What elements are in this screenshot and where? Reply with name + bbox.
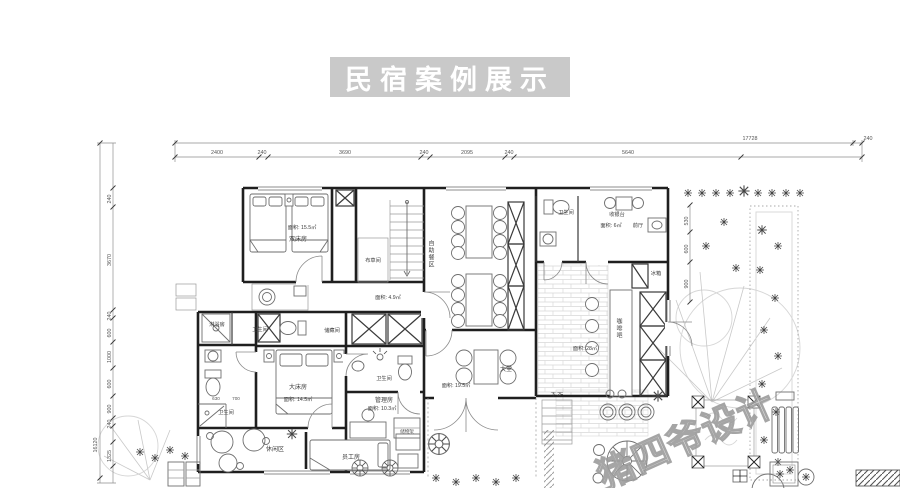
label-linen: 布草间 [365,256,381,264]
svg-text:2400: 2400 [211,150,223,156]
label-bar: 咖啡吧 [615,317,622,339]
label-lobby-area: 面积: 19.5㎡ [442,381,471,389]
label-wc-small: 卫生间 [376,374,392,382]
svg-text:3670: 3670 [107,254,113,266]
page-title: 民宿案例展示 [345,58,555,97]
label-hall-area: 面积: 6㎡ [600,221,622,229]
svg-text:5640: 5640 [622,150,634,156]
label-wc-strip: 卫生间 [252,325,268,333]
dim-top-right: 240 [864,136,873,142]
twin-beds [250,194,328,252]
label-office-shelf: 储物架 [400,428,414,435]
label-wc-top: 卫生间 [558,208,574,216]
label-staff: 员工房 [342,453,360,461]
svg-text:3690: 3690 [339,150,351,156]
svg-text:1000: 1000 [107,351,113,363]
label-twin-area: 面积: 15.5㎡ [288,223,317,231]
dim-left-overall: 16120 [93,438,99,453]
garden-left [136,284,200,486]
label-fridge: 冰箱 [651,269,661,277]
master-bath-fixtures [198,350,226,428]
svg-text:530: 530 [684,217,690,226]
svg-text:600: 600 [107,329,113,338]
label-leisure: 休闲区 [266,445,284,453]
label-storage: 储藏间 [324,326,340,334]
top-bathroom-fixtures [540,200,569,246]
svg-text:240: 240 [107,312,113,321]
svg-text:2095: 2095 [461,150,473,156]
label-twin-name: 双床房 [289,235,307,243]
label-cashier: 收银台 [609,210,625,218]
label-master-area: 面积: 14.5㎡ [284,395,313,403]
svg-text:240: 240 [505,150,514,156]
label-master-name: 大床房 [289,383,307,391]
svg-text:600: 600 [684,245,690,254]
label-shower: 淋浴房 [209,320,225,328]
label-corridor-area: 面积: 4.9㎡ [375,293,401,301]
svg-text:1325: 1325 [107,450,113,462]
svg-text:240: 240 [420,150,429,156]
svg-text:240: 240 [258,150,267,156]
staircase [358,200,424,282]
svg-text:240: 240 [107,195,113,204]
label-stair-down: 下 2F [551,391,564,398]
label-bar-area: 面积: 28㎡ [573,344,598,352]
label-wc-master: 卫生间 [218,408,234,416]
svg-text:240: 240 [107,420,113,429]
label-hall-name: 前厅 [633,221,643,229]
svg-text:600: 600 [107,380,113,389]
svg-text:900: 900 [107,405,113,414]
label-office: 管理房 [375,396,393,404]
dim-top-overall: 17728 [743,136,758,142]
label-dim-630: 630 [212,396,220,401]
label-lobby: 大堂 [500,365,512,373]
laundry-nook [252,284,308,310]
svg-text:900: 900 [684,280,690,289]
label-dining: 自助餐区 [427,239,434,268]
staff-bed [310,434,420,470]
dining-tables [452,206,507,328]
floorplan-canvas: 17728 240 2400 240 3690 240 2095 240 564… [0,0,900,488]
entrance-plant [429,434,450,455]
title-banner: 民宿案例展示 [330,57,570,97]
label-dim-700: 700 [232,396,240,401]
label-office-area: 面积: 10.3㎡ [368,404,397,412]
porch [428,398,554,488]
